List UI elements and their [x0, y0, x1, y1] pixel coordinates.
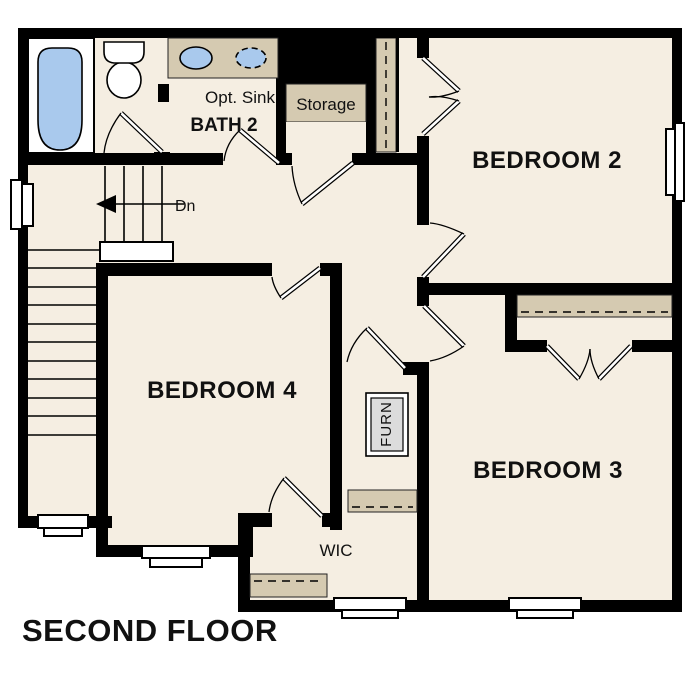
window: [150, 558, 202, 567]
window: [38, 515, 88, 528]
stair-landing: [100, 242, 173, 261]
window: [44, 528, 82, 536]
wall-segment: [417, 165, 429, 225]
window: [22, 184, 33, 226]
floor-plan-drawing: Dn FURN: [0, 0, 687, 687]
floor-plan-page: Dn FURN: [0, 0, 687, 687]
bedroom3-label: BEDROOM 3: [473, 457, 623, 484]
furnace-label: FURN: [378, 401, 395, 447]
window: [142, 546, 210, 558]
wall-segment: [632, 340, 682, 352]
stairs-down-label: Dn: [175, 198, 195, 215]
window: [517, 610, 573, 618]
wall-segment: [96, 263, 108, 557]
window: [675, 123, 684, 201]
wall-segment: [505, 340, 547, 352]
wall-segment: [330, 263, 342, 530]
storage-door-opening: [292, 153, 352, 165]
wall-segment: [18, 153, 223, 165]
bedroom2-closet-shelf: [376, 38, 396, 152]
sink: [180, 47, 212, 69]
exterior-notch: [0, 528, 96, 612]
wall-segment: [417, 362, 429, 600]
optional-sink-label: Opt. Sink: [205, 88, 275, 107]
window: [509, 598, 581, 610]
bedroom4-label: BEDROOM 4: [147, 377, 297, 404]
toilet-bowl: [107, 62, 141, 98]
wall-segment: [96, 263, 272, 276]
storage-label: Storage: [296, 95, 356, 114]
wall-segment: [238, 600, 682, 612]
furnace-unit: FURN: [366, 393, 408, 456]
wall-segment: [158, 84, 169, 102]
wall-segment: [238, 513, 250, 612]
bedroom2-closet-floor: [399, 38, 417, 152]
window: [11, 180, 22, 229]
wic-shelf-upper: [348, 490, 417, 512]
toilet-tank: [104, 42, 144, 63]
wall-segment: [417, 136, 429, 165]
wall-segment: [322, 513, 342, 527]
wall-segment: [18, 28, 28, 528]
bathtub: [38, 48, 82, 150]
wall-segment: [18, 28, 682, 38]
page-title: SECOND FLOOR: [22, 613, 278, 648]
wall-segment: [417, 283, 682, 295]
storage-floor: [286, 122, 366, 153]
bedroom2-label: BEDROOM 2: [472, 147, 622, 174]
wall-segment: [154, 152, 170, 165]
wall-segment: [352, 153, 426, 165]
bedroom3-closet-shelf: [517, 295, 672, 317]
optional-sink: [236, 48, 266, 68]
bath2-label: BATH 2: [190, 115, 257, 136]
wic-shelf-lower: [250, 574, 327, 597]
wall-segment: [403, 362, 429, 375]
window: [342, 610, 398, 618]
wall-segment: [672, 28, 682, 612]
wic-label: WIC: [319, 541, 352, 560]
closet-front-line: [396, 38, 399, 152]
wall-segment: [417, 38, 429, 58]
window: [334, 598, 406, 610]
